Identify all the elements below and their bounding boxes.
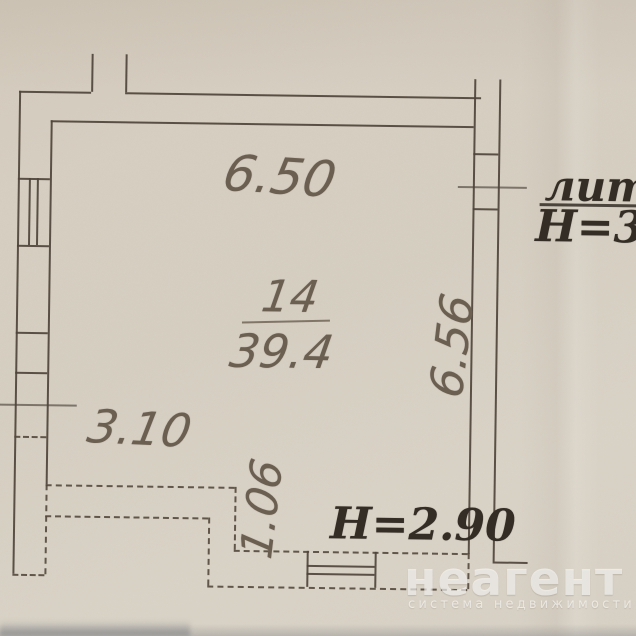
watermark-tagline: система недвижимости xyxy=(408,597,635,612)
wall-top-outer-left xyxy=(19,91,91,94)
dimension-extension-line xyxy=(0,404,77,407)
left-wall-tick xyxy=(14,436,46,438)
dimension-right-height: 6.56 xyxy=(419,291,484,402)
scanned-floor-plan-photo: 6.50 14 39.4 3.10 6.56 1.06 лит.А Н=3.2 … xyxy=(0,0,636,636)
wall-left-inner xyxy=(46,120,53,484)
right-window-top-icon xyxy=(473,153,498,155)
ceiling-height-main-label: Н=3.2 xyxy=(535,201,636,254)
dimension-extension-line xyxy=(458,186,527,189)
wall-right-outer xyxy=(493,80,502,562)
bottom-left-cap xyxy=(12,574,44,576)
right-window-bottom-icon xyxy=(473,208,498,210)
wall-top-inner xyxy=(51,120,474,128)
step-outer-vertical xyxy=(207,517,210,585)
dimension-step-depth: 1.06 xyxy=(231,453,293,564)
left-wall-tick xyxy=(16,332,48,334)
wall-left-inner-lower xyxy=(44,484,47,574)
room-bottom-left xyxy=(46,484,235,489)
wall-top-outer-right xyxy=(125,92,481,99)
bottom-window-pane-icon xyxy=(306,573,374,576)
left-window-bottom-icon xyxy=(17,245,49,247)
left-window-pane-icon xyxy=(28,178,31,245)
wall-stub-right xyxy=(125,54,128,92)
dimension-bottom-left-width: 3.10 xyxy=(83,399,196,458)
step-outer-horizontal xyxy=(45,515,208,519)
left-window-pane-icon xyxy=(36,178,39,245)
left-wall-tick xyxy=(15,372,47,374)
left-window-top-icon xyxy=(18,178,50,180)
bottom-window-side-icon xyxy=(374,552,377,588)
wall-stub-left xyxy=(91,54,94,92)
bottom-window-side-icon xyxy=(306,551,309,587)
floor-plan: 6.50 14 39.4 3.10 6.56 1.06 лит.А Н=3.2 … xyxy=(0,0,636,636)
bottom-window-pane-icon xyxy=(307,565,375,568)
ceiling-height-lower-label: Н=2.90 xyxy=(330,498,516,552)
room-area: 39.4 xyxy=(226,324,337,379)
dimension-top-width: 6.50 xyxy=(218,144,341,209)
room-number: 14 xyxy=(258,271,322,323)
